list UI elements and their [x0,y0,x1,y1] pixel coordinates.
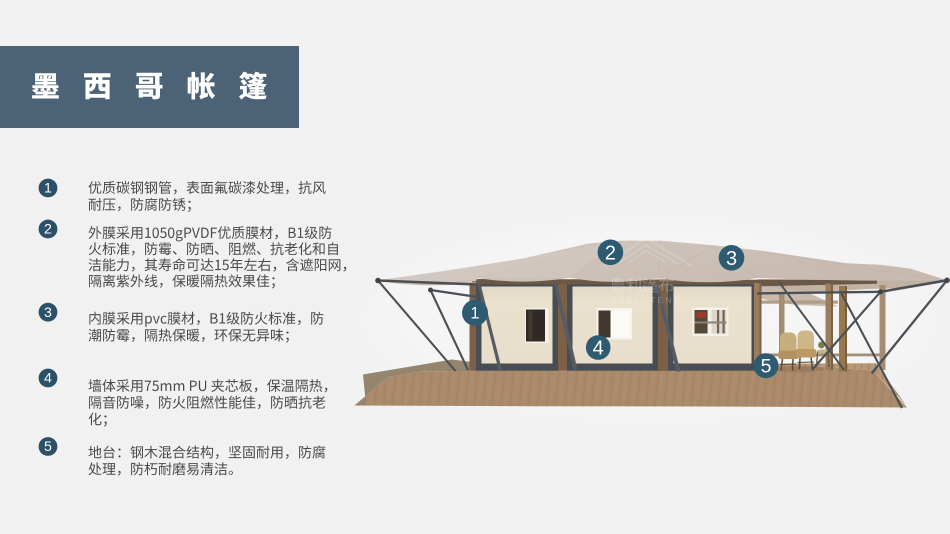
svg-text:4: 4 [593,338,604,360]
svg-text:5: 5 [761,356,772,378]
svg-text:4: 4 [44,371,52,387]
svg-text:3: 3 [726,248,737,270]
svg-text:3: 3 [44,305,52,321]
svg-text:5: 5 [44,439,52,455]
svg-text:2: 2 [44,222,52,238]
svg-text:1: 1 [44,181,52,197]
svg-text:2: 2 [605,243,616,265]
svg-text:XUELI TENT: XUELI TENT [611,295,682,305]
svg-text:1: 1 [470,305,479,323]
